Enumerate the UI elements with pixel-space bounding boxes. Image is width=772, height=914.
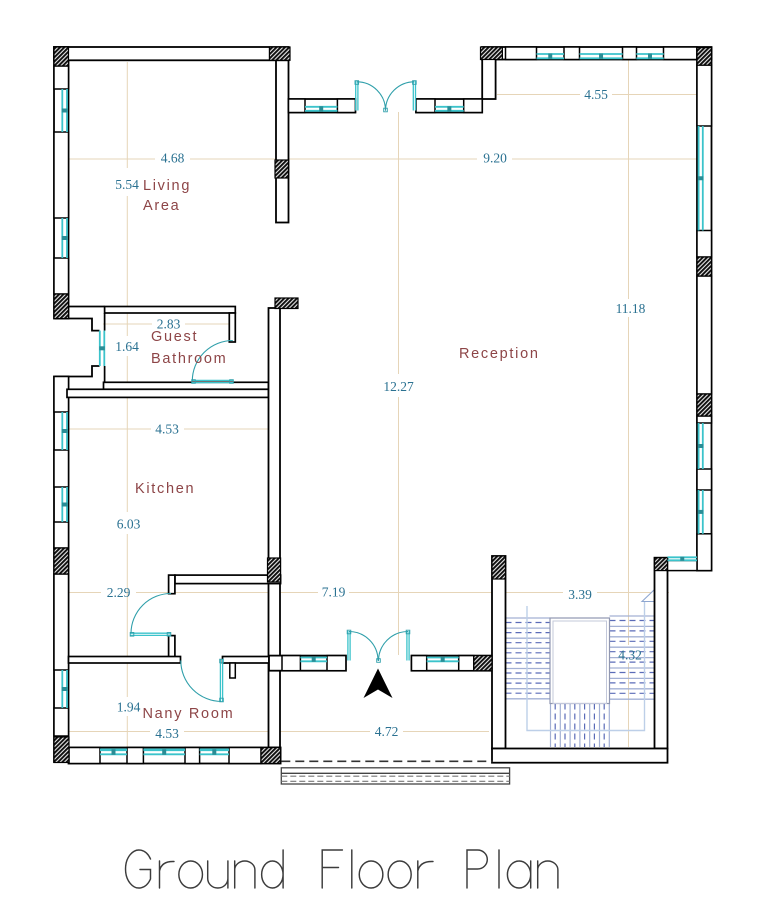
svg-text:Bathroom: Bathroom (151, 351, 227, 367)
svg-text:5.54: 5.54 (115, 177, 139, 192)
svg-text:Living: Living (143, 178, 191, 194)
svg-text:4.55: 4.55 (584, 87, 608, 102)
svg-text:6.03: 6.03 (117, 517, 141, 532)
svg-text:7.19: 7.19 (322, 585, 346, 600)
svg-text:12.27: 12.27 (383, 379, 414, 394)
svg-text:4.53: 4.53 (155, 422, 179, 437)
svg-text:9.20: 9.20 (483, 151, 507, 166)
svg-text:Kitchen: Kitchen (135, 481, 195, 497)
svg-text:1.94: 1.94 (117, 700, 141, 715)
svg-text:4.72: 4.72 (375, 724, 399, 739)
svg-text:1.64: 1.64 (115, 339, 139, 354)
svg-text:4.68: 4.68 (161, 151, 185, 166)
svg-text:3.39: 3.39 (568, 587, 592, 602)
svg-text:Guest: Guest (151, 329, 198, 345)
svg-text:Nany Room: Nany Room (143, 706, 235, 722)
svg-text:4.53: 4.53 (155, 726, 179, 741)
svg-text:Area: Area (143, 198, 180, 214)
svg-text:2.29: 2.29 (107, 585, 131, 600)
svg-text:Reception: Reception (459, 346, 540, 362)
svg-text:4.32: 4.32 (618, 648, 642, 663)
svg-text:11.18: 11.18 (616, 301, 646, 316)
